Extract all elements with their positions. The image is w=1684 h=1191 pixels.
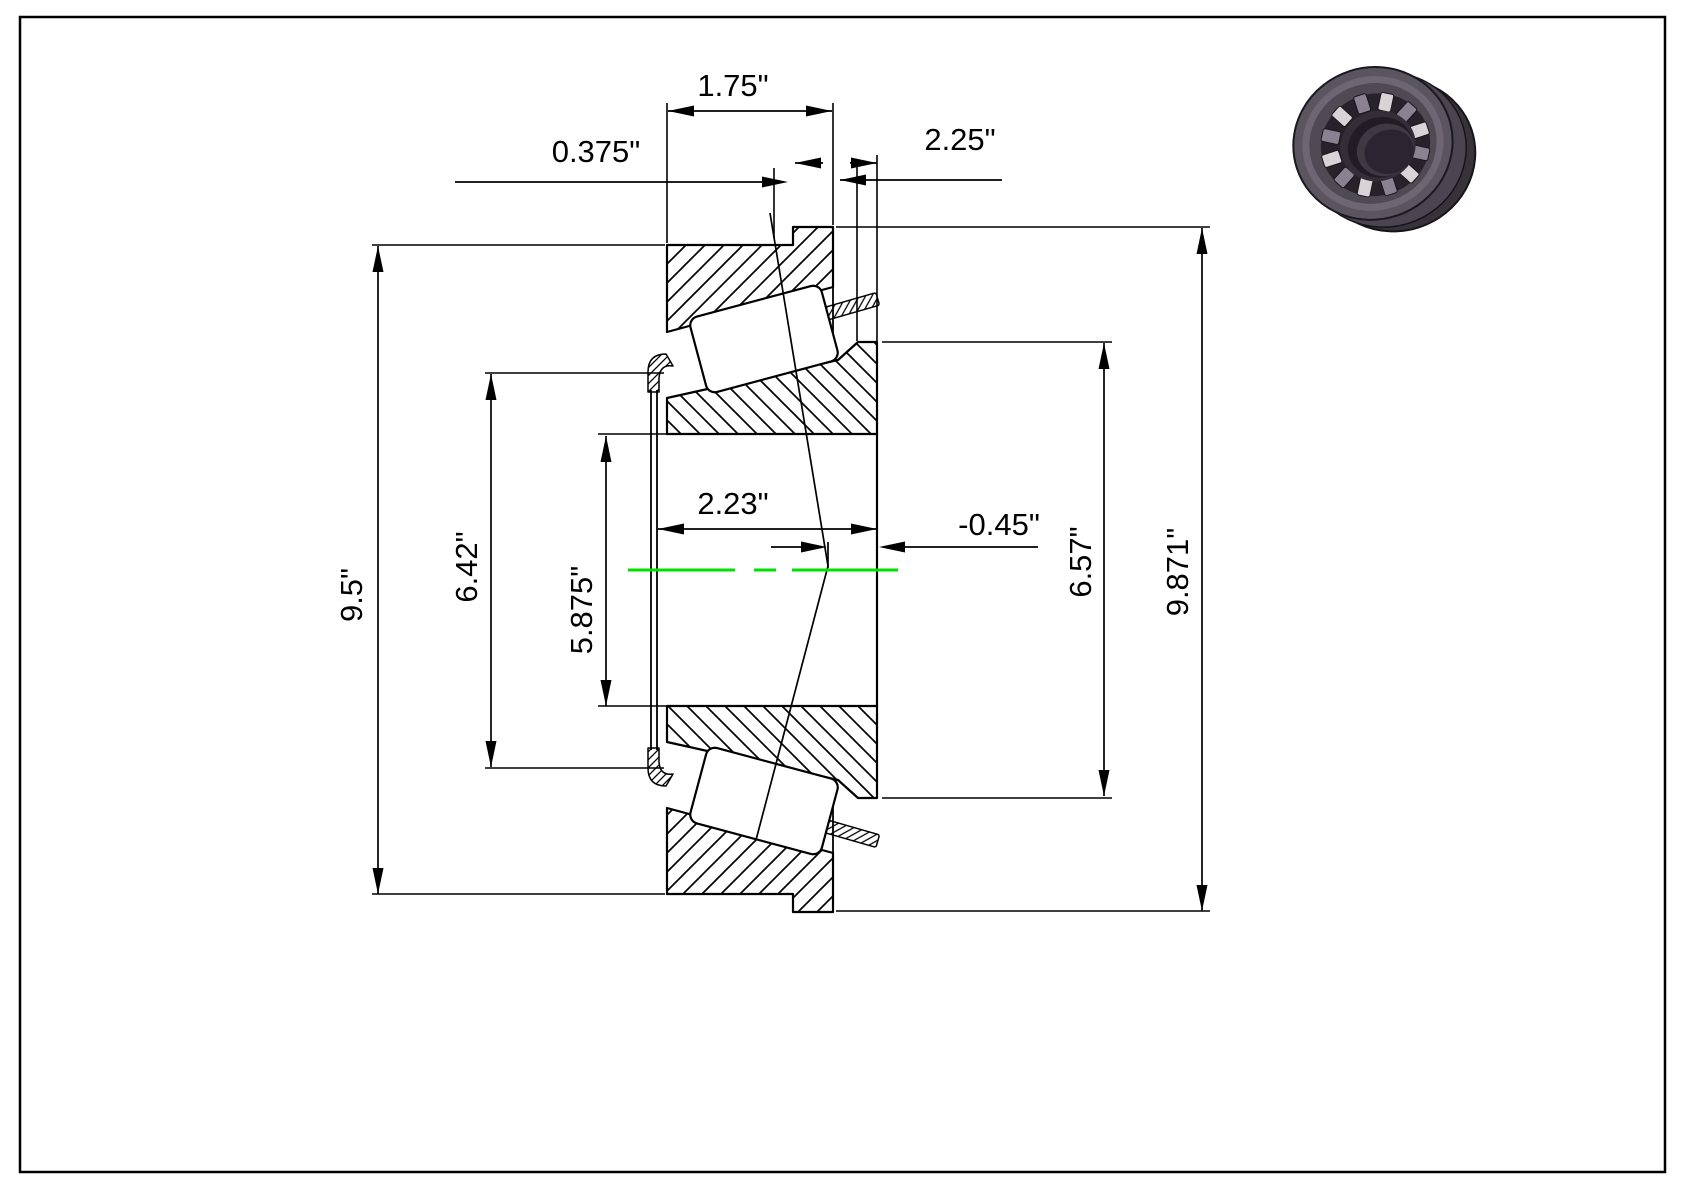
dim-label-bore: 5.875" bbox=[564, 566, 599, 655]
dim-label-cone-width: 2.25" bbox=[924, 122, 995, 157]
dim-label-center-a: 2.23" bbox=[697, 486, 768, 521]
tapered-roller-bearing-3d-render bbox=[1273, 41, 1495, 258]
dim-label-flange-od: 9.871" bbox=[1160, 528, 1195, 617]
drawing-page: 1.75" 0.375" 2.25" 2.23" -0.45" 9.5" 6.4… bbox=[0, 0, 1684, 1191]
bearing-cross-section bbox=[648, 213, 880, 912]
dim-label-cone-od: 6.57" bbox=[1063, 526, 1098, 597]
technical-drawing-canvas: 1.75" 0.375" 2.25" 2.23" -0.45" 9.5" 6.4… bbox=[0, 0, 1684, 1191]
dim-label-mid-od: 6.42" bbox=[449, 531, 484, 602]
dim-label-cup-od: 9.5" bbox=[334, 568, 369, 622]
dim-label-standout: 0.375" bbox=[552, 134, 641, 169]
cage-curl-bottom bbox=[648, 748, 673, 786]
dim-label-center-b: -0.45" bbox=[958, 507, 1040, 542]
dim-label-cup-width: 1.75" bbox=[697, 68, 768, 103]
